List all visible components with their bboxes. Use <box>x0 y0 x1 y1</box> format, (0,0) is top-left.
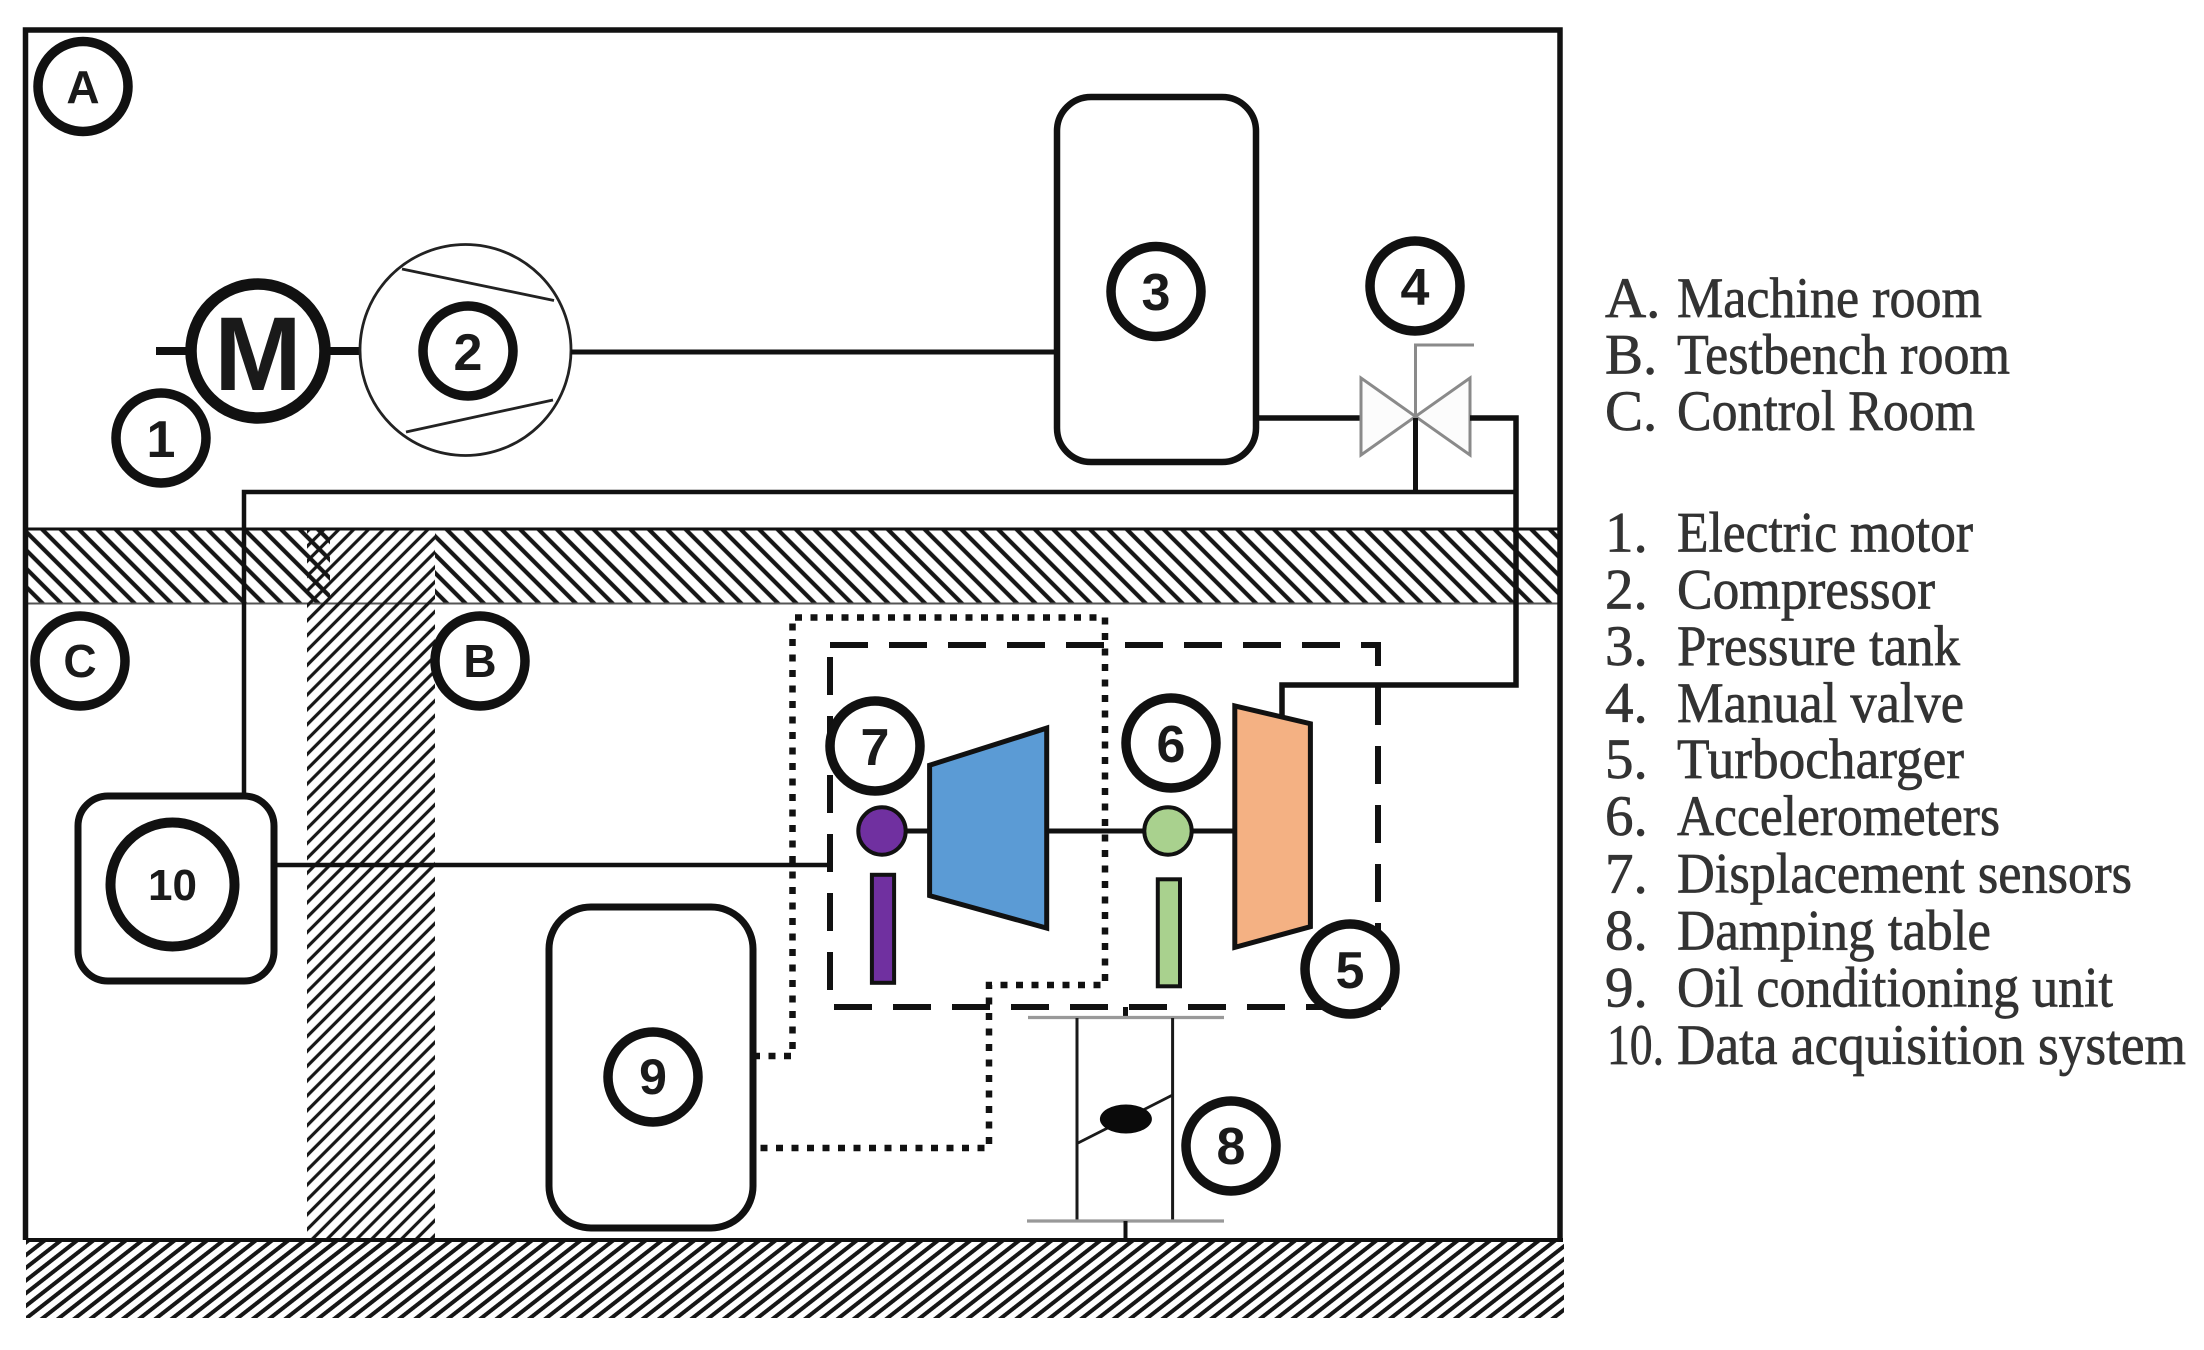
svg-text:B.: B. <box>1605 324 1657 387</box>
svg-text:Compressor: Compressor <box>1677 558 1935 621</box>
svg-text:Electric motor: Electric motor <box>1677 502 1973 565</box>
svg-text:Displacement sensors: Displacement sensors <box>1677 843 2132 906</box>
svg-text:Pressure tank: Pressure tank <box>1677 615 1960 678</box>
svg-text:Machine room: Machine room <box>1677 267 1982 330</box>
svg-text:9: 9 <box>639 1049 667 1105</box>
svg-text:5.: 5. <box>1605 728 1648 791</box>
svg-text:Data acquisition system: Data acquisition system <box>1677 1014 2186 1077</box>
svg-text:Testbench room: Testbench room <box>1677 324 2010 387</box>
svg-text:1.: 1. <box>1605 502 1648 565</box>
svg-text:3.: 3. <box>1605 615 1648 678</box>
svg-text:A: A <box>66 61 99 113</box>
svg-text:7: 7 <box>861 719 890 777</box>
svg-text:1: 1 <box>147 411 176 469</box>
svg-text:5: 5 <box>1336 942 1365 1000</box>
svg-text:4.: 4. <box>1605 672 1648 735</box>
svg-text:2: 2 <box>454 324 483 382</box>
svg-text:6: 6 <box>1157 716 1186 774</box>
svg-text:Turbocharger: Turbocharger <box>1677 728 1964 791</box>
svg-text:Manual valve: Manual valve <box>1677 672 1964 735</box>
svg-text:10: 10 <box>148 861 197 910</box>
svg-text:M: M <box>214 296 301 413</box>
svg-text:B: B <box>463 635 496 687</box>
svg-text:9.: 9. <box>1605 957 1648 1020</box>
svg-text:Oil conditioning unit: Oil conditioning unit <box>1677 957 2113 1020</box>
svg-text:8: 8 <box>1217 1118 1246 1176</box>
svg-text:10.: 10. <box>1607 1014 1664 1077</box>
svg-text:A.: A. <box>1605 267 1660 330</box>
svg-text:7.: 7. <box>1605 843 1648 906</box>
svg-text:C: C <box>63 635 96 687</box>
svg-text:2.: 2. <box>1605 558 1648 621</box>
svg-text:8.: 8. <box>1605 900 1648 963</box>
svg-text:3: 3 <box>1142 264 1171 322</box>
svg-text:Damping table: Damping table <box>1677 900 1991 963</box>
svg-text:4: 4 <box>1401 259 1430 317</box>
svg-text:Control Room: Control Room <box>1677 380 1975 443</box>
svg-text:Accelerometers: Accelerometers <box>1677 785 2000 848</box>
svg-text:6.: 6. <box>1605 785 1648 848</box>
svg-text:C.: C. <box>1605 380 1657 443</box>
